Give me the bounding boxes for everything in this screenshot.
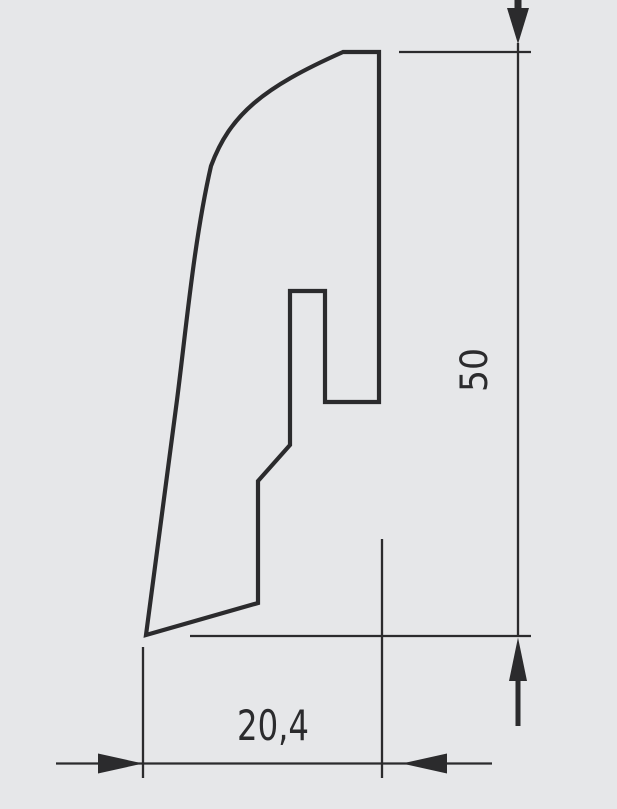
drawing-paper — [0, 0, 617, 809]
width-dim-label: 20,4 — [237, 701, 309, 750]
height-dim-label: 50 — [453, 348, 496, 392]
technical-drawing-canvas: 50 20,4 — [0, 0, 617, 809]
drawing-background: 50 20,4 — [0, 0, 617, 809]
